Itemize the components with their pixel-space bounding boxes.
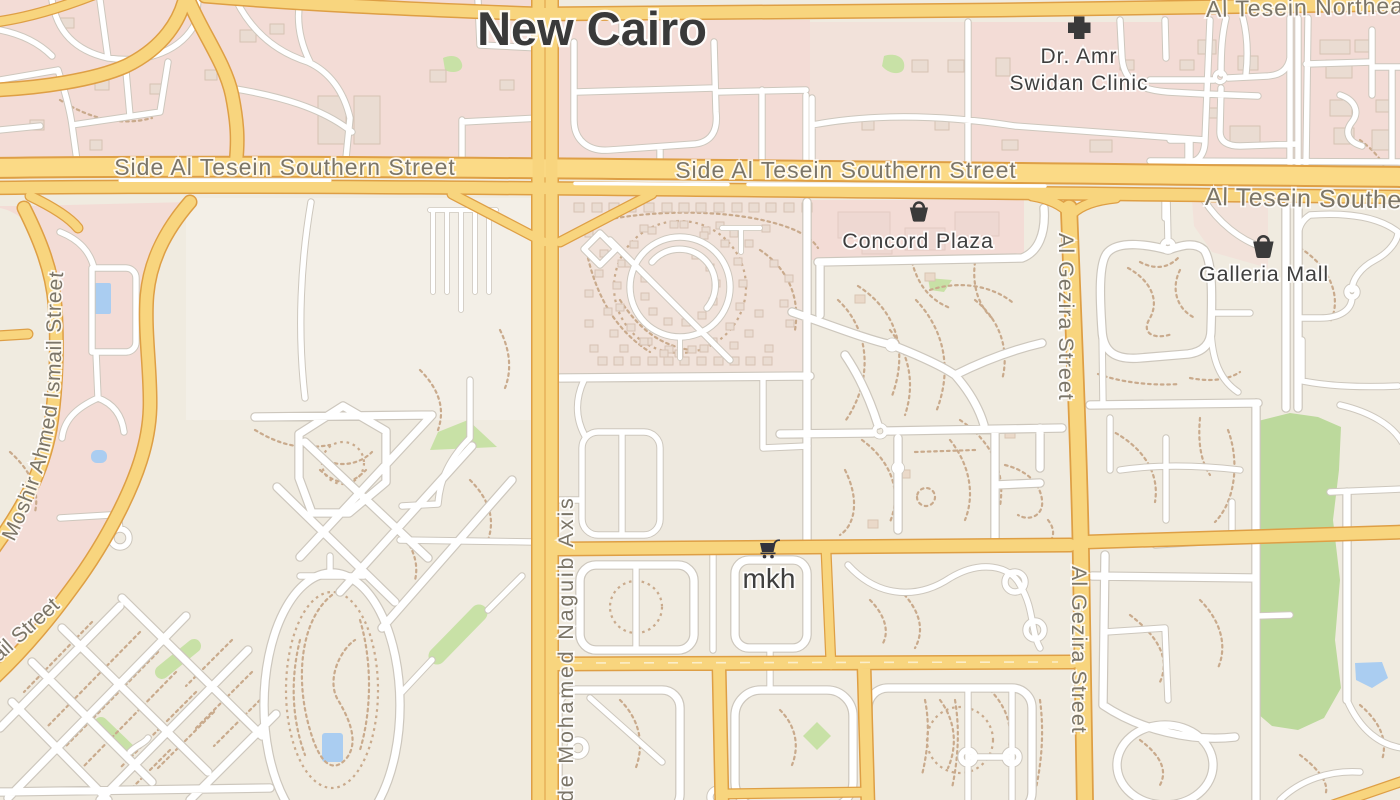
svg-text:mkh: mkh [743,563,796,594]
svg-text:Al Tesein Southe: Al Tesein Southe [1205,183,1400,214]
svg-text:Dr. Amr: Dr. Amr [1040,45,1117,68]
svg-text:Side Al Tesein Southern Street: Side Al Tesein Southern Street [114,154,456,180]
svg-text:Concord Plaza: Concord Plaza [842,229,993,253]
svg-text:de Mohamed Naguib Axis: de Mohamed Naguib Axis [554,495,578,800]
svg-text:Al Tesein Northea: Al Tesein Northea [1206,0,1400,22]
svg-text:New Cairo: New Cairo [477,2,707,55]
svg-text:Side Al Tesein Southern Street: Side Al Tesein Southern Street [675,157,1017,183]
svg-text:Al Gezira Street: Al Gezira Street [1054,233,1078,401]
svg-text:Al Gezira Street: Al Gezira Street [1067,566,1091,734]
svg-text:Galleria Mall: Galleria Mall [1199,262,1329,286]
svg-text:Swidan Clinic: Swidan Clinic [1009,72,1148,95]
